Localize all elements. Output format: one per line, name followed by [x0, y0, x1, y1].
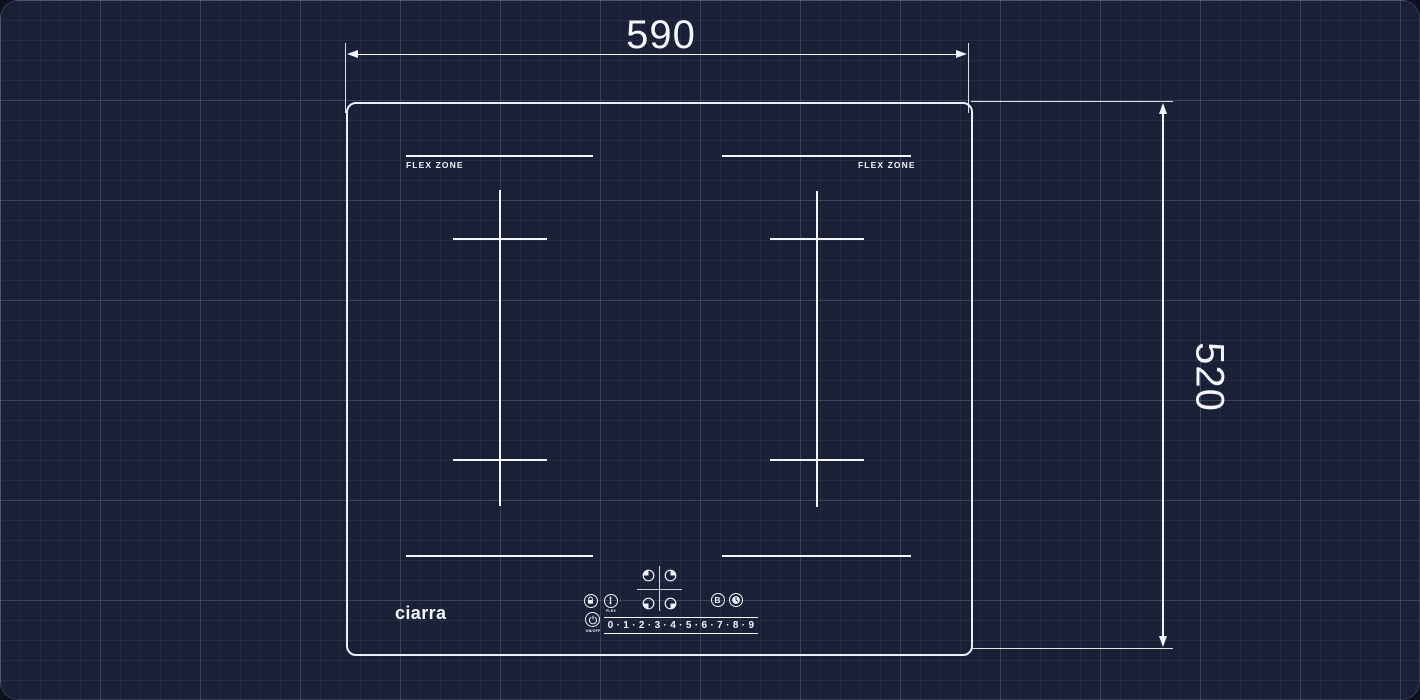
- flex-zone-right-label: FLEX ZONE: [858, 160, 911, 170]
- burner-left-top-cross: [453, 238, 547, 240]
- child-lock-control: [584, 594, 598, 608]
- blueprint-frame: 590 520 FLEX ZONE FLEX ZONE: [0, 0, 1420, 700]
- height-arrow-top-icon: [1159, 103, 1167, 114]
- width-arrow-left-icon: [347, 50, 358, 58]
- height-dimension-label: 520: [1187, 342, 1232, 412]
- zone-icon-bottom-left: [642, 597, 655, 610]
- boost-control: B: [711, 593, 725, 607]
- flex-bridge-arrows-icon: [606, 596, 615, 605]
- height-extension-line-top: [971, 101, 1173, 102]
- width-extension-line-left: [345, 43, 346, 113]
- zone-icon-top-right: [664, 569, 677, 582]
- power-control: [585, 612, 600, 627]
- zone-icon-bottom-right: [664, 597, 677, 610]
- child-lock-icon: [586, 596, 595, 605]
- width-arrow-right-icon: [956, 50, 967, 58]
- zone-divider-vertical: [659, 566, 660, 611]
- boost-label: B: [714, 596, 720, 605]
- width-dimension-line: [349, 54, 965, 56]
- flex-zone-left-bottom-line: [406, 555, 593, 557]
- flex-zone-right-bottom-line: [722, 555, 911, 557]
- power-level-values: 0 · 1 · 2 · 3 · 4 · 5 · 6 · 7 · 8 · 9: [608, 620, 755, 631]
- height-extension-line-bottom: [971, 648, 1173, 649]
- timer-control: [729, 593, 743, 607]
- height-dimension-line: [1162, 105, 1164, 645]
- zone-icon-top-left: [642, 569, 655, 582]
- flex-control-label: FLEX: [597, 609, 624, 613]
- power-control-label: ON/OFF: [579, 629, 606, 633]
- burner-right-top-cross: [770, 238, 864, 240]
- power-icon: [588, 615, 598, 625]
- flex-zone-right-line: [722, 155, 911, 157]
- brand-logo: ciarra: [395, 603, 446, 624]
- timer-clock-icon: [731, 595, 741, 605]
- burner-left-bottom-cross: [453, 459, 547, 461]
- flex-zone-left-label: FLEX ZONE: [406, 160, 464, 170]
- power-level-slider: 0 · 1 · 2 · 3 · 4 · 5 · 6 · 7 · 8 · 9: [604, 617, 758, 634]
- diagram-scene: 590 520 FLEX ZONE FLEX ZONE: [0, 0, 1420, 700]
- height-arrow-bottom-icon: [1159, 636, 1167, 647]
- flex-control: [604, 594, 618, 608]
- width-dimension-label: 590: [596, 13, 726, 58]
- flex-zone-left-line: [406, 155, 593, 157]
- burner-right-bottom-cross: [770, 459, 864, 461]
